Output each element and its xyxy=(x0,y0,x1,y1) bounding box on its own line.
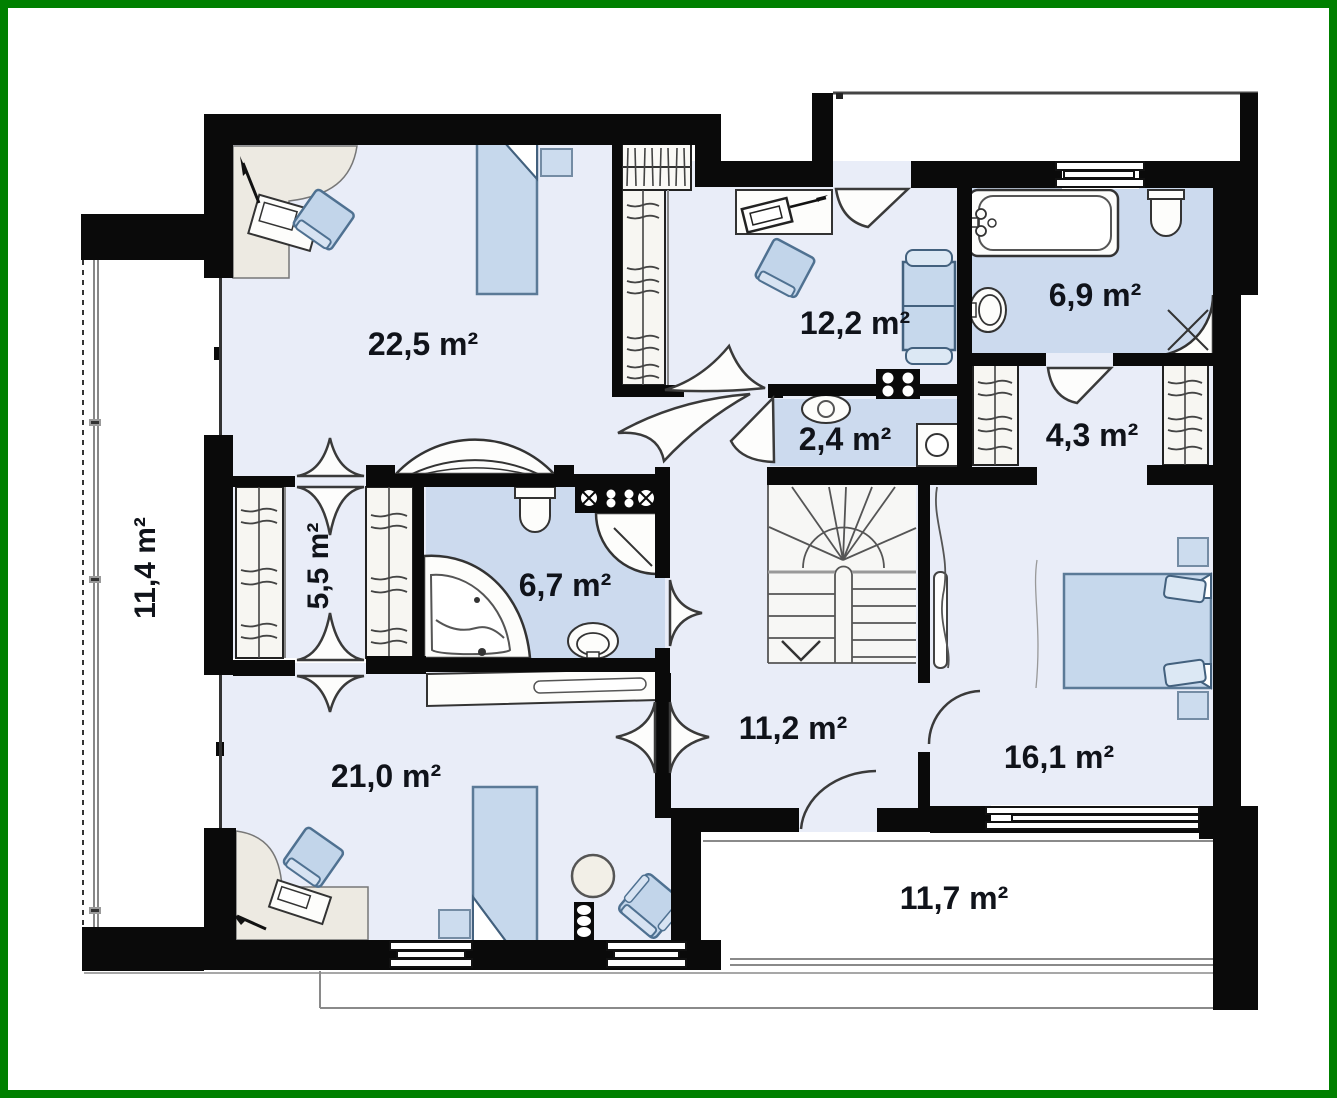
svg-text:2,4 m²: 2,4 m² xyxy=(799,421,891,457)
svg-text:16,1 m²: 16,1 m² xyxy=(1004,739,1114,775)
svg-text:6,7 m²: 6,7 m² xyxy=(519,567,611,603)
svg-text:22,5 m²: 22,5 m² xyxy=(368,326,478,362)
svg-text:4,3 m²: 4,3 m² xyxy=(1046,417,1138,453)
svg-text:5,5 m²: 5,5 m² xyxy=(302,523,335,610)
svg-text:12,2 m²: 12,2 m² xyxy=(800,305,910,341)
svg-text:11,4 m²: 11,4 m² xyxy=(129,517,162,619)
svg-text:11,7 m²: 11,7 m² xyxy=(900,880,1009,916)
svg-text:21,0 m²: 21,0 m² xyxy=(331,758,441,794)
svg-text:11,2 m²: 11,2 m² xyxy=(739,710,848,746)
svg-text:6,9 m²: 6,9 m² xyxy=(1049,277,1141,313)
